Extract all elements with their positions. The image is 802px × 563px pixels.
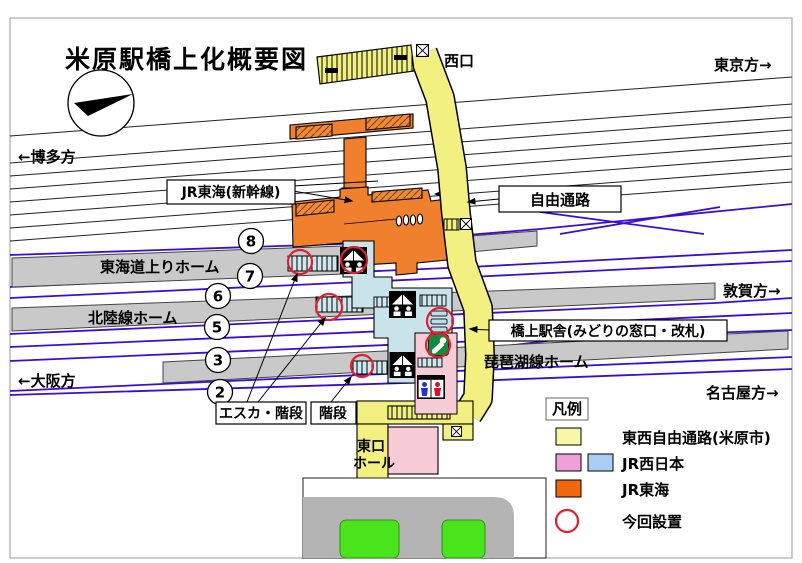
- direction-osaka: ←大阪方: [18, 372, 76, 390]
- legend-label: JR東海: [621, 481, 669, 499]
- elevator-icon: [451, 426, 461, 436]
- legend: 凡例 東西自由通路(米原市) JR西日本 JR東海 今回設置: [546, 398, 771, 532]
- direction-nagoya: 名古屋方→: [706, 384, 779, 402]
- overbridge-hatch: [296, 124, 332, 139]
- midori-no-madoguchi-icon: [429, 335, 449, 356]
- station-diagram: 8 7 6 5 3 2 東海道上りホーム 北陸線ホーム 琵琶湖線ホーム JR東海…: [0, 0, 802, 563]
- building-window: [410, 215, 415, 225]
- platform-label-hokuriku: 北陸線ホーム: [88, 309, 178, 327]
- west-entrance: [317, 45, 428, 84]
- stairs-hatch: [374, 297, 390, 307]
- stairs-hatch: [420, 295, 446, 306]
- east-hall-pink-block: [388, 427, 438, 474]
- callout-free-passage: 自由通路: [530, 191, 591, 209]
- leader-arrow: [247, 274, 297, 402]
- platform-number: 7: [245, 268, 255, 286]
- leader-arrow: [331, 377, 351, 402]
- legend-red-circle: [556, 510, 578, 532]
- legend-swatch-jrtokai: [556, 480, 581, 497]
- legend-label: 東西自由通路(米原市): [622, 429, 771, 447]
- escalator-machine: [394, 55, 407, 60]
- elevator-icon: [417, 45, 429, 57]
- building-window: [417, 214, 422, 224]
- east-plaza: [303, 478, 546, 558]
- label-east-hall-2: ホール: [353, 456, 395, 472]
- platform-number: 6: [213, 288, 223, 306]
- label-west-exit: 西口: [444, 52, 474, 70]
- platform-number: 8: [246, 233, 256, 251]
- platform-label-tokaido: 東海道上りホーム: [100, 258, 220, 276]
- legend-swatch-jrwest-blue: [588, 454, 613, 471]
- direction-tsuruga: 敦賀方→: [723, 282, 781, 300]
- escalator-icon: [390, 352, 416, 378]
- building-window: [403, 215, 408, 225]
- leader-arrow: [468, 199, 499, 202]
- legend-heading: 凡例: [552, 400, 582, 418]
- legend-swatch-jrwest-pink: [556, 454, 581, 471]
- callout-bridge-station: 橋上駅舎(みどりの窓口・改札): [511, 323, 706, 340]
- direction-tokyo: 東京方→: [714, 56, 772, 74]
- diagram-canvas: 8 7 6 5 3 2 東海道上りホーム 北陸線ホーム 琵琶湖線ホーム JR東海…: [0, 0, 802, 563]
- north-arrow-icon: [68, 70, 134, 136]
- track-line: [10, 130, 792, 189]
- platform-number: 5: [212, 319, 222, 337]
- lawn-area: [340, 520, 399, 558]
- callout-esc-stairs: エスカ・階段: [219, 405, 303, 422]
- direction-hakata: ←博多方: [18, 148, 76, 166]
- platform-label-biwako: 琵琶湖線ホーム: [484, 353, 589, 371]
- label-east-hall-1: 東口: [357, 438, 385, 455]
- platform-number: 3: [213, 352, 223, 370]
- elevator-icon: [461, 219, 472, 230]
- ticket-gates-icon: [431, 311, 447, 332]
- legend-label: 今回設置: [621, 513, 682, 531]
- callout-jr-tokai-shinkansen: JR東海(新幹線): [181, 184, 281, 201]
- escalator-machine: [325, 68, 338, 73]
- lawn-area: [442, 520, 485, 558]
- building-window: [396, 216, 401, 226]
- stairs-hatch: [418, 358, 442, 367]
- passage-landing: [444, 219, 459, 230]
- escalator-icon: [389, 291, 416, 318]
- west-entrance-stairs: [317, 45, 414, 84]
- legend-label: JR西日本: [621, 455, 684, 473]
- callout-stairs: 階段: [319, 405, 347, 422]
- platform-number: 2: [215, 384, 225, 402]
- restroom-icon: [418, 376, 444, 398]
- legend-swatch-passage: [556, 428, 581, 445]
